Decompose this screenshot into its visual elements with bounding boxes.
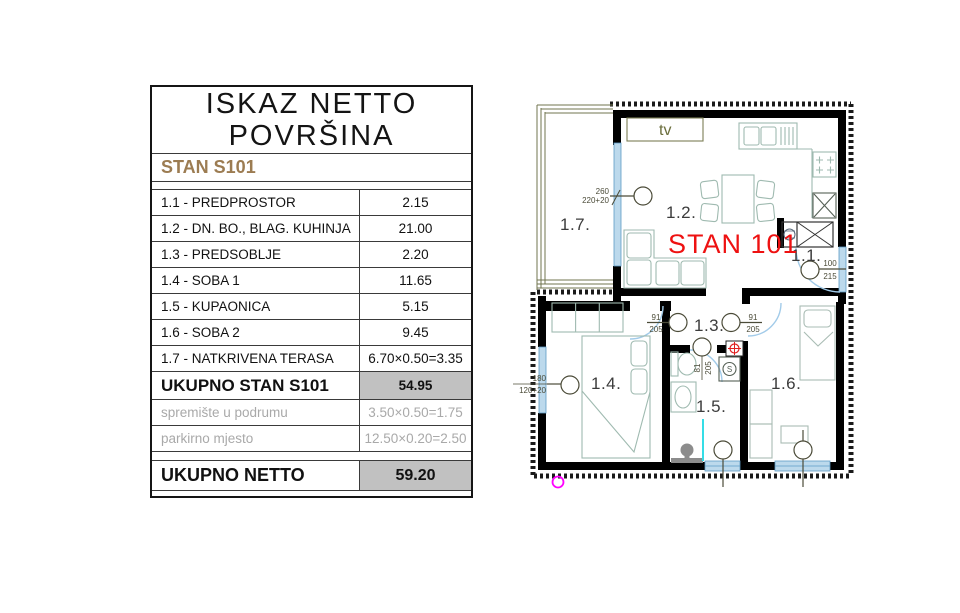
room-label-16: 1.6. (771, 374, 801, 393)
floorplan-sheet: ISKAZ NETTO POVRŠINA STAN S101 1.1 - PRE… (0, 0, 960, 613)
unit-label: STAN 101 (668, 229, 799, 259)
chair (756, 180, 775, 199)
dim-circle (693, 338, 711, 356)
closet-16 (750, 424, 772, 458)
room-label-17: 1.7. (560, 215, 590, 234)
wardrobe-x (797, 222, 833, 247)
dim-terrace-w: 260 (596, 187, 610, 196)
dim-doorR-h: 205 (746, 325, 760, 334)
svg-text:S: S (727, 365, 732, 374)
dim-circle (561, 376, 579, 394)
dim-circle (669, 314, 687, 332)
survey-target-icon (726, 341, 743, 356)
chair (756, 203, 775, 222)
dining-table (722, 175, 754, 223)
dim-doorR-w: 91 (749, 313, 758, 322)
dim-doorL-w: 91 (652, 313, 661, 322)
room-label-15: 1.5. (696, 397, 726, 416)
room-label-14: 1.4. (591, 374, 621, 393)
closet-16 (750, 390, 772, 424)
cooktop (813, 152, 836, 177)
bed-14 (582, 336, 650, 458)
terrace-window (614, 143, 621, 266)
kitchen-counter-edge (797, 149, 812, 218)
room-label-13: 1.3. (694, 316, 724, 335)
tv-label: tv (659, 122, 671, 139)
shower-drain-icon (671, 444, 703, 464)
chair (700, 203, 719, 222)
floor-plan: S (0, 0, 960, 613)
bed-16 (800, 306, 835, 380)
dim-win14-h: 120+20 (519, 386, 546, 395)
dim-terrace-h: 220+20 (582, 196, 609, 205)
dim-bath-w: 81 (693, 363, 702, 372)
dim-bath-h: 205 (704, 361, 713, 375)
room-label-12: 1.2. (666, 203, 696, 222)
toilet (671, 352, 678, 376)
dim-win14-w: 180 (533, 374, 547, 383)
room-labels: 1.7. 1.2. 1.1. 1.3. 1.4. 1.5. 1.6. tv ST… (560, 122, 821, 416)
dim-doorL-h: 205 (649, 325, 663, 334)
chair (700, 180, 719, 199)
dim-circle (722, 314, 740, 332)
dim-entry-w: 100 (823, 259, 837, 268)
dim-circle (634, 187, 652, 205)
dim-circle (714, 441, 732, 459)
dim-circle (794, 441, 812, 459)
walls (538, 110, 846, 470)
dim-entry-h: 215 (823, 272, 837, 281)
